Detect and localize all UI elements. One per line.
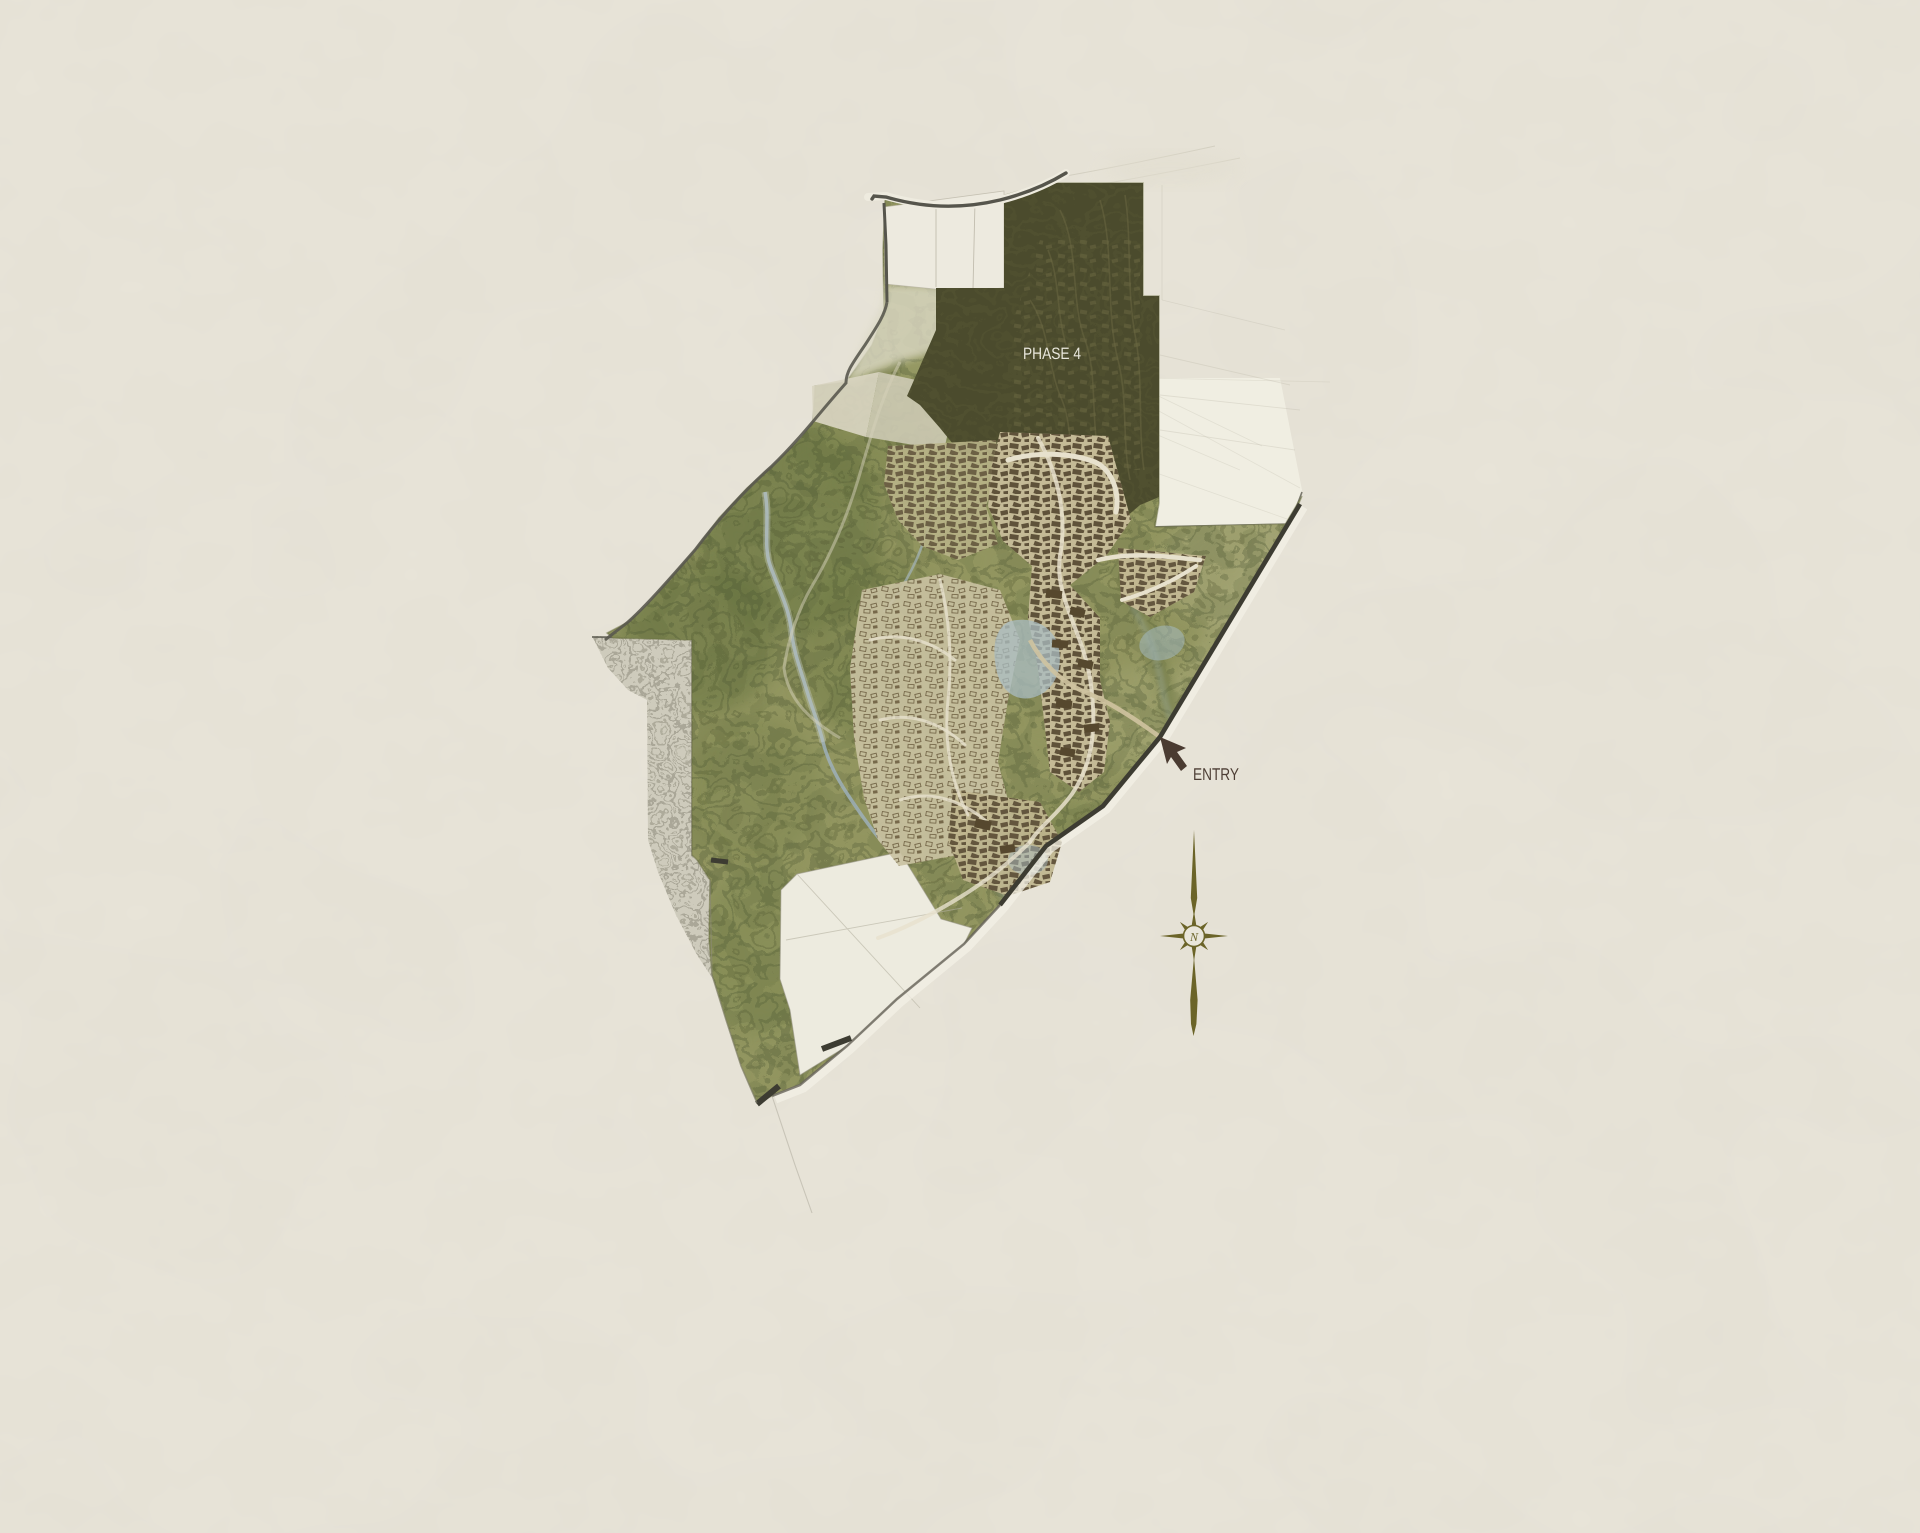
svg-text:ENTRY: ENTRY — [1193, 765, 1239, 784]
svg-text:N: N — [1189, 930, 1199, 944]
svg-text:PHASE 4: PHASE 4 — [1023, 345, 1081, 363]
